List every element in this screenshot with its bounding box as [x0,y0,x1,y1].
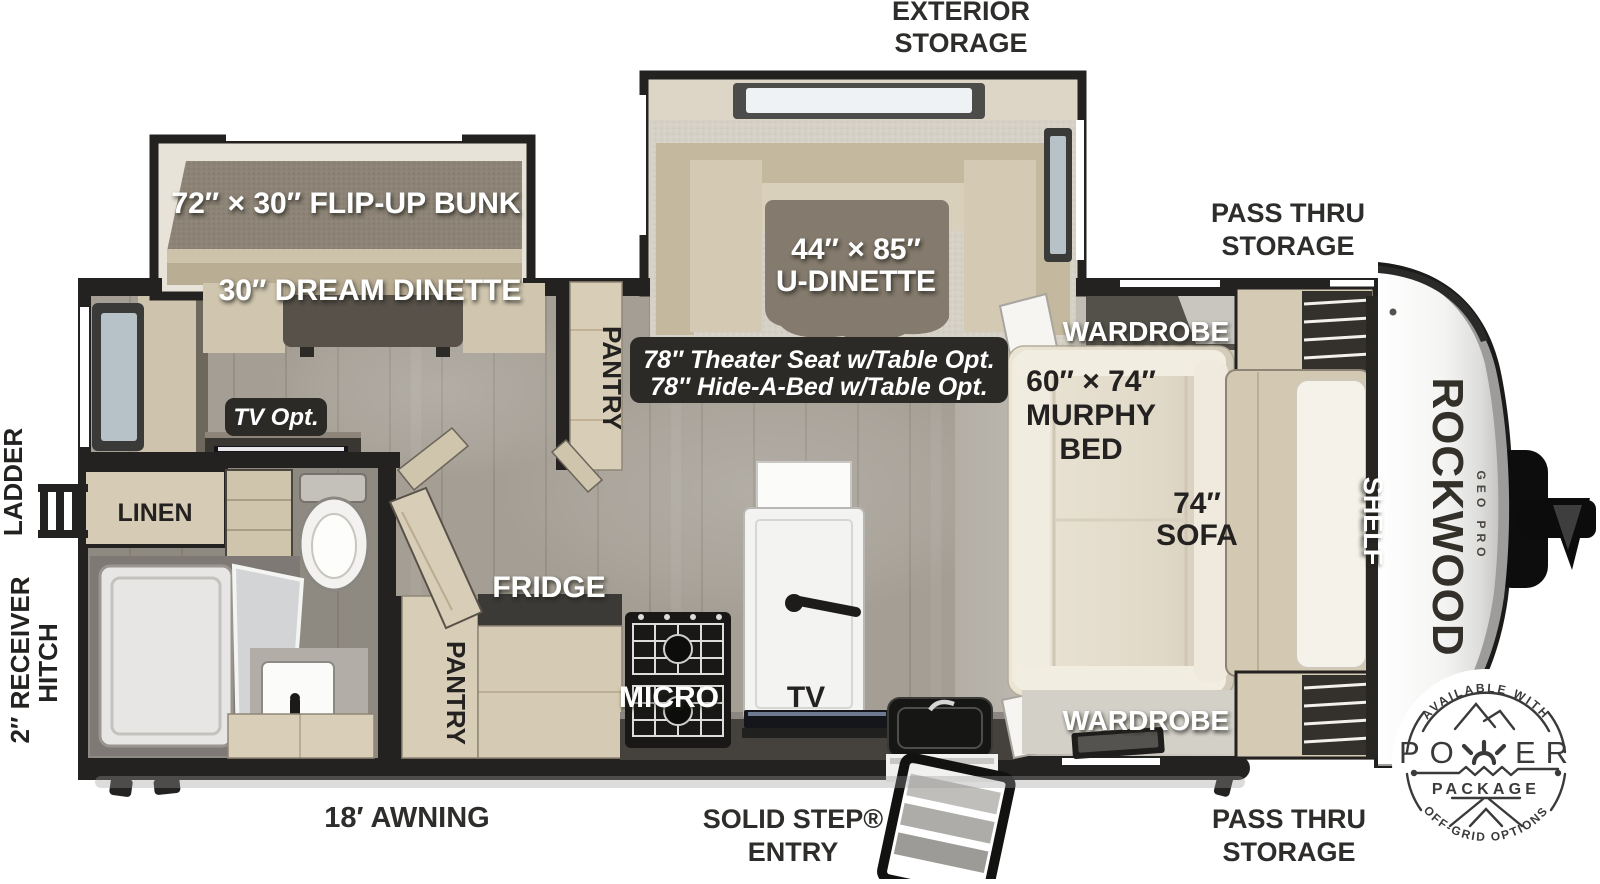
svg-text:MICRO: MICRO [619,681,719,714]
svg-text:PO: PO [1399,735,1464,770]
svg-text:ENTRY: ENTRY [748,837,839,867]
svg-text:SOLID STEP®: SOLID STEP® [703,804,884,834]
svg-text:2″ RECEIVER: 2″ RECEIVER [5,576,35,743]
svg-text:PANTRY: PANTRY [441,641,471,745]
svg-text:60″ × 74″: 60″ × 74″ [1026,365,1156,398]
svg-text:STORAGE: STORAGE [1221,231,1354,261]
svg-text:WARDROBE: WARDROBE [1063,316,1229,347]
svg-text:PACKAGE: PACKAGE [1432,781,1540,798]
svg-text:LADDER: LADDER [0,428,28,537]
svg-text:MURPHY: MURPHY [1026,399,1156,432]
svg-text:FRIDGE: FRIDGE [492,571,605,604]
svg-text:18′ AWNING: 18′ AWNING [324,802,489,834]
svg-text:BED: BED [1059,433,1122,466]
svg-text:SOFA: SOFA [1156,519,1238,552]
svg-text:ER: ER [1515,735,1578,770]
svg-text:EXTERIOR: EXTERIOR [892,0,1030,26]
svg-text:PANTRY: PANTRY [597,326,627,430]
svg-text:ROCKWOOD: ROCKWOOD [1423,377,1472,656]
svg-text:STORAGE: STORAGE [894,28,1027,58]
svg-text:78″ Hide-A-Bed w/Table Opt.: 78″ Hide-A-Bed w/Table Opt. [650,373,987,401]
svg-text:HITCH: HITCH [33,623,63,702]
svg-text:PASS THRU: PASS THRU [1211,198,1365,228]
svg-text:TV: TV [787,681,825,714]
svg-text:PASS THRU: PASS THRU [1212,804,1366,834]
svg-text:72″ × 30″ FLIP-UP BUNK: 72″ × 30″ FLIP-UP BUNK [171,187,520,220]
svg-text:GEO PRO: GEO PRO [1474,470,1488,561]
svg-text:WARDROBE: WARDROBE [1063,705,1229,736]
svg-text:78″ Theater Seat w/Table Opt.: 78″ Theater Seat w/Table Opt. [643,346,994,374]
svg-text:STORAGE: STORAGE [1222,837,1355,867]
svg-text:LINEN: LINEN [118,499,193,527]
svg-text:SHELF: SHELF [1358,477,1388,566]
svg-text:TV Opt.: TV Opt. [233,404,318,431]
svg-text:74″: 74″ [1173,487,1221,520]
svg-text:U-DINETTE: U-DINETTE [776,265,936,298]
svg-text:30″ DREAM DINETTE: 30″ DREAM DINETTE [219,274,522,307]
svg-text:44″ × 85″: 44″ × 85″ [791,233,921,266]
